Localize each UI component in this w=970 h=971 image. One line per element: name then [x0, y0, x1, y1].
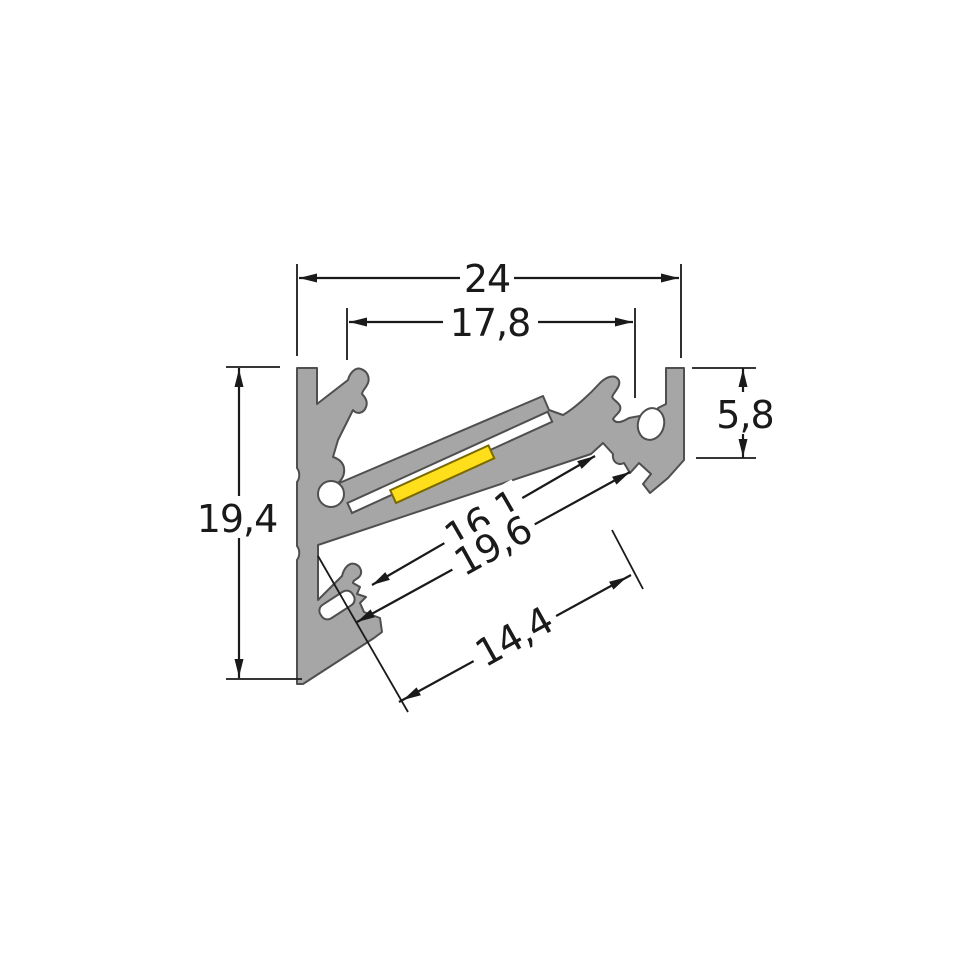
- technical-drawing-canvas: 24 17,8 5,8 19,4 16,1 19,6 14,4: [0, 0, 970, 971]
- dimension-label-overall-height: 19,4: [197, 497, 278, 541]
- arrow-58-bottom: [739, 439, 748, 457]
- arrow-194-top: [235, 369, 244, 387]
- dimension-label-right-edge-depth: 5,8: [716, 393, 773, 437]
- arrow-178-right: [615, 318, 633, 327]
- arrow-24-left: [299, 274, 317, 283]
- screw-channel-hole: [318, 481, 344, 507]
- dimension-label-inner-width-top: 17,8: [450, 301, 531, 345]
- profile-drawing: 24 17,8 5,8 19,4 16,1 19,6 14,4: [0, 0, 970, 971]
- dimension-label-overall-width: 24: [464, 257, 510, 301]
- arrow-161-sw: [370, 572, 390, 589]
- arrow-24-right: [661, 274, 679, 283]
- arrow-178-left: [349, 318, 367, 327]
- arrow-144-sw: [401, 687, 421, 704]
- arrow-58-top: [739, 369, 748, 387]
- arrow-144-ne: [609, 573, 629, 590]
- arrow-194-bottom: [235, 659, 244, 677]
